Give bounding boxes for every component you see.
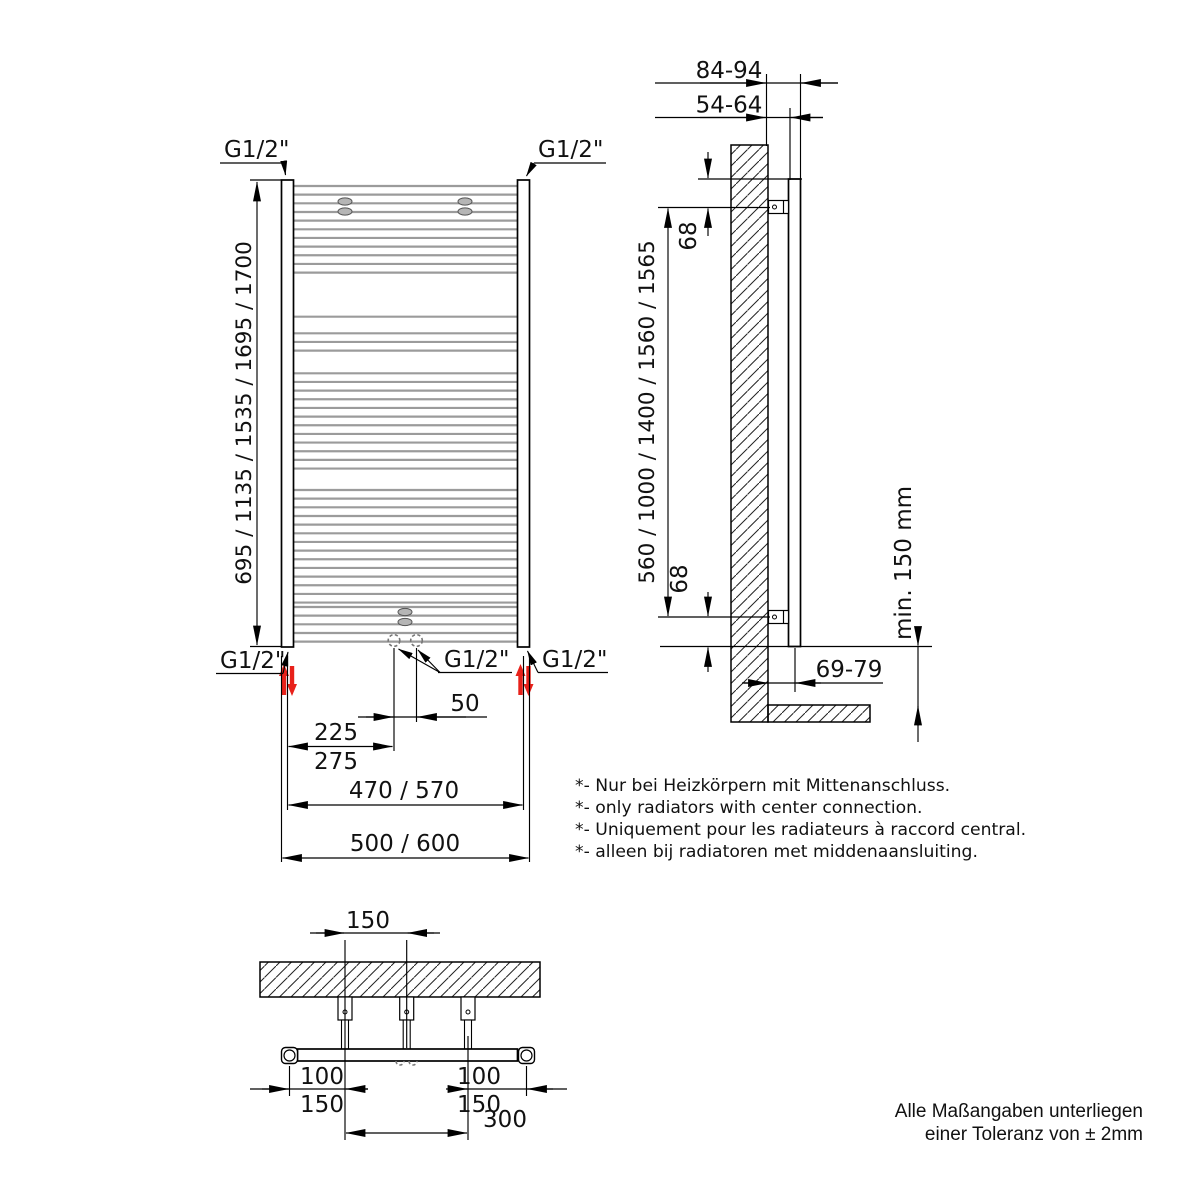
wall-to-axis-label: 69-79 [816, 657, 883, 683]
left-tube [282, 180, 294, 647]
wall-bracket-bottom [769, 611, 789, 624]
tolerance-line-1: Alle Maßangaben unterliegen [895, 1101, 1143, 1122]
connection-label-bottom-left: G1/2" [220, 648, 285, 674]
wall-section-top-view [260, 962, 540, 997]
bracket-markers [338, 198, 472, 626]
floor-section [768, 705, 870, 722]
connection-label-bottom-center: G1/2" [444, 647, 509, 673]
front-view: 695 / 1135 / 1535 / 1695 / 1700 G1/2" G1… [216, 137, 608, 862]
wall-to-front-label: 84-94 [696, 58, 763, 84]
notes: *- Nur bei Heizkörpern mit Mittenanschlu… [575, 776, 1026, 862]
right-offset-top-label: 100 [457, 1064, 501, 1090]
connection-label-top-left: G1/2" [224, 137, 289, 163]
tolerance-note: Alle Maßangaben unterliegen einer Tolera… [895, 1101, 1143, 1145]
floor-clearance-label: min. 150 mm [891, 486, 917, 640]
side-to-center-bottom-label: 275 [314, 749, 358, 775]
side-view: 84-94 54-64 68 560 / 1000 / 1400 / 1560 … [635, 58, 932, 742]
bracket-to-bottom-label: 68 [667, 564, 693, 593]
note-line-nl: *- alleen bij radiatoren met middenaansl… [575, 842, 978, 862]
bracket-span-label: 560 / 1000 / 1400 / 1560 / 1565 [635, 240, 660, 584]
center-pitch-label: 50 [450, 691, 479, 717]
width-label: 500 / 600 [350, 831, 460, 857]
note-line-fr: *- Uniquement pour les radiateurs à racc… [575, 820, 1026, 840]
left-offset-bottom-label: 150 [300, 1092, 344, 1118]
drawing-page: 695 / 1135 / 1535 / 1695 / 1700 G1/2" G1… [0, 0, 1200, 1200]
top-edge-to-bracket-label: 68 [676, 221, 702, 250]
wall-bracket-top [769, 201, 789, 214]
note-line-en: *- only radiators with center connection… [575, 798, 923, 818]
height-dimension-label: 695 / 1135 / 1535 / 1695 / 1700 [232, 241, 257, 585]
connection-label-bottom-right: G1/2" [542, 647, 607, 673]
top-view: 150 100 150 100 150 300 [250, 908, 567, 1140]
center-connection-left-icon [388, 635, 400, 647]
technical-drawing: 695 / 1135 / 1535 / 1695 / 1700 G1/2" G1… [0, 0, 1200, 1200]
outer-bracket-span-label: 300 [483, 1107, 527, 1133]
wall-to-back-label: 54-64 [696, 93, 763, 119]
tolerance-line-2: einer Toleranz von ± 2mm [925, 1124, 1143, 1145]
tube-top-view [298, 1049, 518, 1061]
center-bracket-offset-label: 150 [346, 908, 390, 934]
rung-lines [294, 186, 518, 642]
center-connection-right-icon [411, 635, 423, 647]
side-to-center-top-label: 225 [314, 720, 358, 746]
right-tube [518, 180, 530, 647]
tube-pitch-label: 470 / 570 [349, 778, 459, 804]
wall-section [731, 145, 768, 722]
side-tube [789, 179, 801, 647]
connection-label-top-right: G1/2" [538, 137, 603, 163]
left-offset-top-label: 100 [300, 1064, 344, 1090]
note-line-de: *- Nur bei Heizkörpern mit Mittenanschlu… [575, 776, 950, 796]
